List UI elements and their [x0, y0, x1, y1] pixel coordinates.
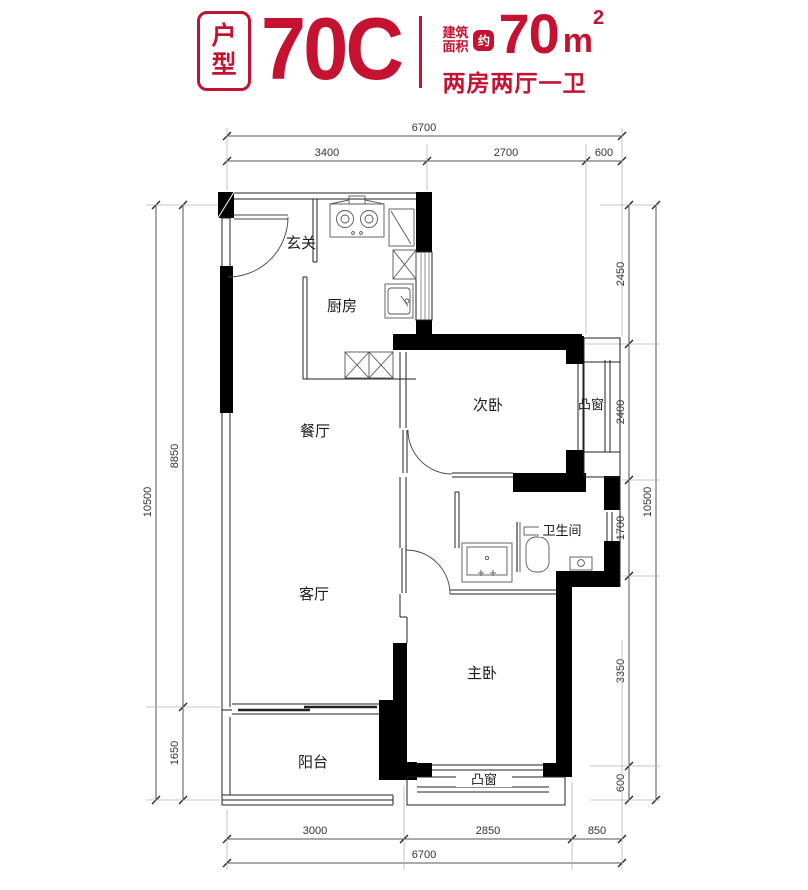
dim-top-1: 3400	[315, 147, 339, 159]
room-label-bay-window-right: 凸窗	[578, 397, 604, 412]
dim-left-1: 8850	[169, 444, 181, 468]
room-label-dining: 餐厅	[300, 423, 330, 440]
dim-bottom-3: 850	[588, 825, 606, 837]
dim-right-3: 1700	[615, 516, 627, 540]
floor-plan: 6700 3400 2700 600 10500 8850 1650	[0, 0, 808, 890]
dim-bottom-1: 3000	[303, 825, 327, 837]
stove-icon	[330, 204, 384, 237]
dim-bottom-total: 6700	[412, 849, 436, 861]
dim-top-total: 6700	[412, 122, 436, 134]
room-label-secondary-bedroom: 次卧	[473, 397, 503, 414]
dim-right-2: 2400	[615, 400, 627, 424]
dim-left-2: 1650	[169, 741, 181, 765]
dim-top-2: 2700	[494, 147, 518, 159]
dim-top-3: 600	[595, 147, 613, 159]
kitchen-fixtures	[330, 196, 416, 378]
floorplan-page: 户 型 70C 建筑 面积 约 70 m 2 两房两厅一卫 67	[0, 0, 808, 890]
bathroom-door-swing	[406, 550, 450, 594]
dim-right-5: 600	[615, 774, 627, 792]
vanity-icon	[462, 543, 512, 582]
dim-left-total: 10500	[142, 487, 154, 518]
dim-right-1: 2450	[615, 262, 627, 286]
room-label-bay-window-bottom: 凸窗	[471, 772, 497, 787]
range-hood-icon	[349, 196, 365, 204]
dim-right-4: 3350	[615, 659, 627, 683]
dim-right-total: 10500	[642, 487, 654, 518]
room-label-master-bedroom: 主卧	[467, 665, 497, 682]
room-label-kitchen: 厨房	[327, 298, 357, 315]
dim-bottom-2: 2850	[476, 825, 500, 837]
room-label-bathroom: 卫生间	[542, 523, 581, 538]
room-label-living: 客厅	[299, 586, 329, 603]
entry-door-swing	[228, 217, 288, 277]
secondary-bedroom-door-swing	[408, 430, 452, 474]
bathroom-window	[607, 512, 612, 541]
room-label-entry: 玄关	[286, 235, 316, 252]
room-label-balcony: 阳台	[298, 754, 328, 771]
washer-icon	[570, 557, 592, 570]
